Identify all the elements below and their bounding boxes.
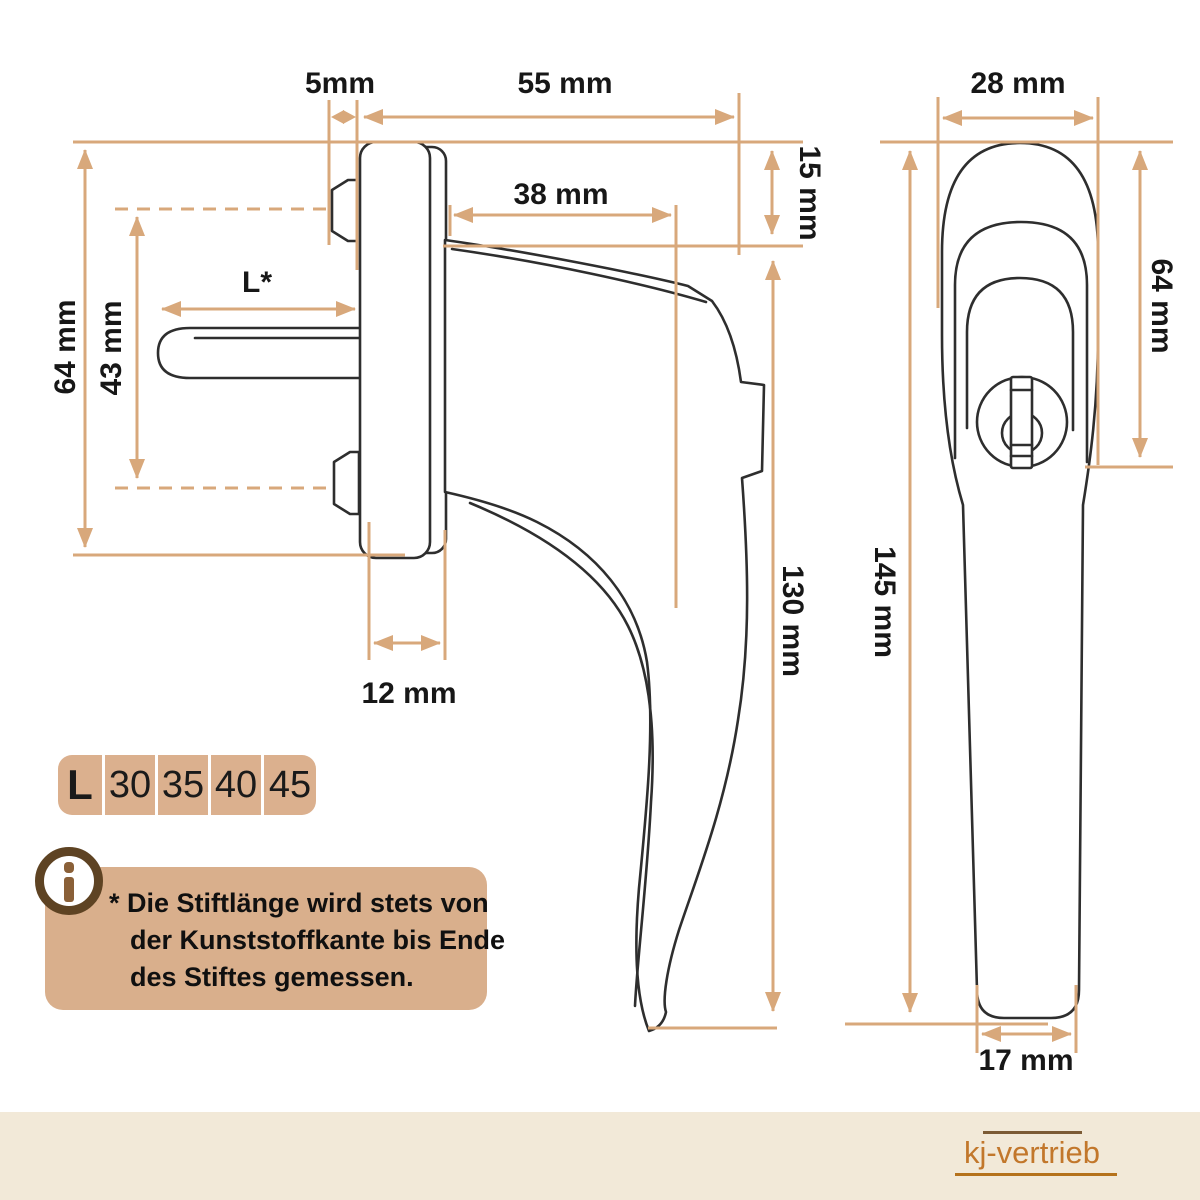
arrow-5mm-right	[343, 110, 356, 124]
dim-label-5mm: 5mm	[305, 67, 375, 101]
size-option-30: 30	[105, 755, 155, 815]
dim-label-145mm: 145 mm	[867, 546, 901, 658]
screw-top	[332, 180, 357, 241]
dim-label-43mm: 43 mm	[95, 300, 129, 395]
info-icon	[35, 847, 103, 915]
size-option-40: 40	[211, 755, 261, 815]
brand-logo: kj-vertrieb	[964, 1135, 1100, 1171]
dim-label-12mm: 12 mm	[361, 677, 456, 711]
arrow-5mm-left	[331, 110, 344, 124]
info-icon-stem	[64, 877, 74, 902]
front-view-drawing	[942, 143, 1098, 1018]
info-icon-dot	[64, 862, 74, 873]
size-option-35: 35	[158, 755, 208, 815]
brand-rule-bottom	[955, 1173, 1117, 1176]
dim-label-64mm-side: 64 mm	[49, 299, 83, 394]
dim-label-64mm-front: 64 mm	[1144, 258, 1178, 353]
handle-front-silhouette	[942, 143, 1098, 1018]
note-line-3: des Stiftes gemessen.	[130, 959, 505, 996]
dim-label-28mm: 28 mm	[970, 67, 1065, 101]
screw-bottom	[334, 452, 359, 514]
rosette-plate	[360, 142, 430, 558]
dim-label-15mm: 15 mm	[792, 145, 826, 240]
dim-label-17mm: 17 mm	[978, 1044, 1073, 1078]
dim-label-130mm: 130 mm	[775, 565, 809, 677]
note-text: * Die Stiftlänge wird stets von der Kuns…	[130, 885, 505, 996]
brand-rule-top	[983, 1131, 1082, 1134]
size-table-header: L	[58, 755, 102, 815]
size-option-45: 45	[264, 755, 316, 815]
pin-length-size-table: L 30 35 40 45	[58, 755, 316, 815]
dim-label-pin-length: L*	[242, 266, 272, 300]
dim-label-55mm: 55 mm	[517, 67, 612, 101]
note-line-2: der Kunststoffkante bis Ende	[130, 922, 505, 959]
product-dimension-diagram: 5mm 55 mm 38 mm 15 mm 64 mm 43 mm L* 130…	[0, 0, 1200, 1200]
dim-label-38mm: 38 mm	[513, 178, 608, 212]
note-line-1: * Die Stiftlänge wird stets von	[109, 885, 505, 922]
spindle-pin	[158, 328, 362, 378]
